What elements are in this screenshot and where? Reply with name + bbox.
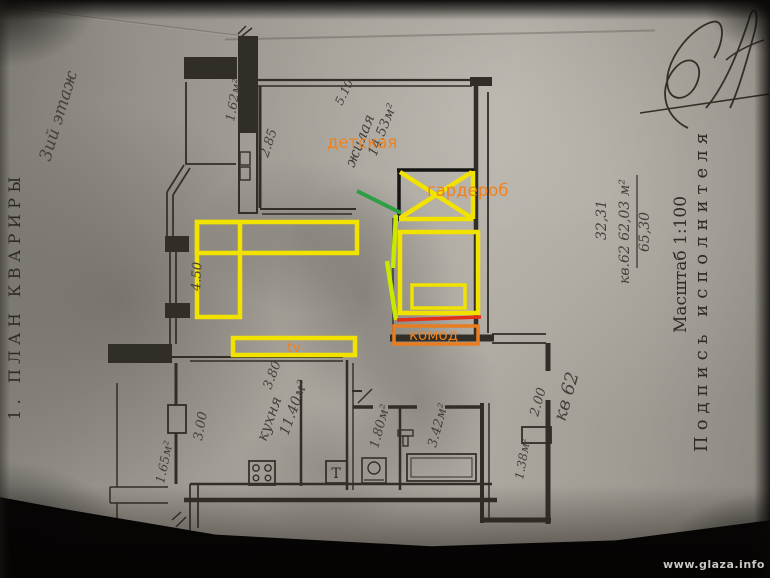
wall-break-mark bbox=[172, 512, 186, 527]
signature-scribble bbox=[726, 40, 764, 60]
area-main: кв.62 62,03 м² bbox=[617, 179, 633, 284]
watermark: www.glaza.info bbox=[663, 558, 765, 571]
labels: 3ий этаж 1.62м² 2.85 5.10 жилая 14.53м² … bbox=[5, 68, 712, 485]
area-upper: 32,31 bbox=[594, 200, 610, 240]
bathtub-icon bbox=[411, 458, 472, 477]
stove-icon bbox=[249, 461, 275, 485]
dresser-label: комод bbox=[409, 326, 458, 344]
plan-title: 1. ПЛАН КВАРИРЫ bbox=[5, 171, 24, 420]
signature-scribble bbox=[706, 10, 757, 108]
wall-break-mark bbox=[238, 26, 252, 36]
floor-note: 3ий этаж bbox=[36, 68, 83, 164]
bath-area: 3.42м² bbox=[425, 402, 451, 449]
door-mark-line bbox=[357, 191, 401, 213]
exterior-wall-left bbox=[170, 252, 176, 305]
bed-pillow-outline bbox=[412, 285, 465, 308]
walls bbox=[108, 26, 551, 530]
stove-burner bbox=[253, 475, 259, 481]
living-width-dim: 5.10 bbox=[332, 77, 356, 107]
wc-area: 1.80м² bbox=[367, 403, 393, 450]
duct-cell bbox=[240, 167, 250, 180]
tv-label: tv bbox=[287, 340, 301, 356]
wall-stub bbox=[190, 484, 198, 530]
floorplan-photo: 3ий этаж 1.62м² 2.85 5.10 жилая 14.53м² … bbox=[0, 0, 770, 578]
wall-block bbox=[108, 344, 172, 363]
apartment-ref: кв 62 bbox=[550, 370, 584, 424]
nursery-label: детская bbox=[327, 133, 397, 152]
stove-burner bbox=[265, 465, 271, 471]
lounge-length-dim: 3.80 bbox=[261, 359, 285, 391]
exterior-wall-left bbox=[170, 318, 176, 346]
divider-line bbox=[397, 317, 481, 320]
wall-block bbox=[470, 77, 492, 86]
balcony-side-area: 1.65м² bbox=[152, 439, 176, 484]
signature-label: Подпись исполнителя bbox=[691, 127, 712, 452]
sofa-back-outline bbox=[197, 222, 357, 253]
wardrobe-label: гардероб bbox=[427, 181, 509, 200]
signature-scribble bbox=[665, 22, 722, 128]
stove-burner bbox=[253, 465, 259, 471]
floorplan-drawing: 3ий этаж 1.62м² 2.85 5.10 жилая 14.53м² … bbox=[0, 0, 770, 578]
kitchen-window bbox=[168, 405, 186, 433]
wall-block bbox=[165, 303, 190, 318]
boiler-label: Т bbox=[331, 466, 341, 482]
kitchen-window-dim: 3.00 bbox=[191, 411, 211, 442]
exterior-wall-left bbox=[167, 192, 173, 238]
duct-shaft bbox=[239, 132, 257, 213]
corridor-wall bbox=[492, 334, 546, 343]
exterior-wall-left bbox=[167, 165, 190, 195]
area-lower: 65,30 bbox=[637, 212, 653, 252]
toilet-icon bbox=[368, 462, 380, 474]
signature bbox=[640, 10, 769, 128]
scale-label: Масштаб 1:100 bbox=[671, 196, 691, 333]
wall-block bbox=[184, 57, 237, 79]
entry-area: 1.38м² bbox=[512, 437, 533, 480]
sink-icon bbox=[403, 436, 408, 446]
wall-block bbox=[165, 236, 189, 252]
accent-line bbox=[387, 215, 396, 320]
signature-line bbox=[640, 94, 769, 113]
duct-cell bbox=[240, 152, 250, 165]
lounge-width-dim: 4.50 bbox=[189, 262, 206, 293]
stove-burner bbox=[265, 475, 271, 481]
